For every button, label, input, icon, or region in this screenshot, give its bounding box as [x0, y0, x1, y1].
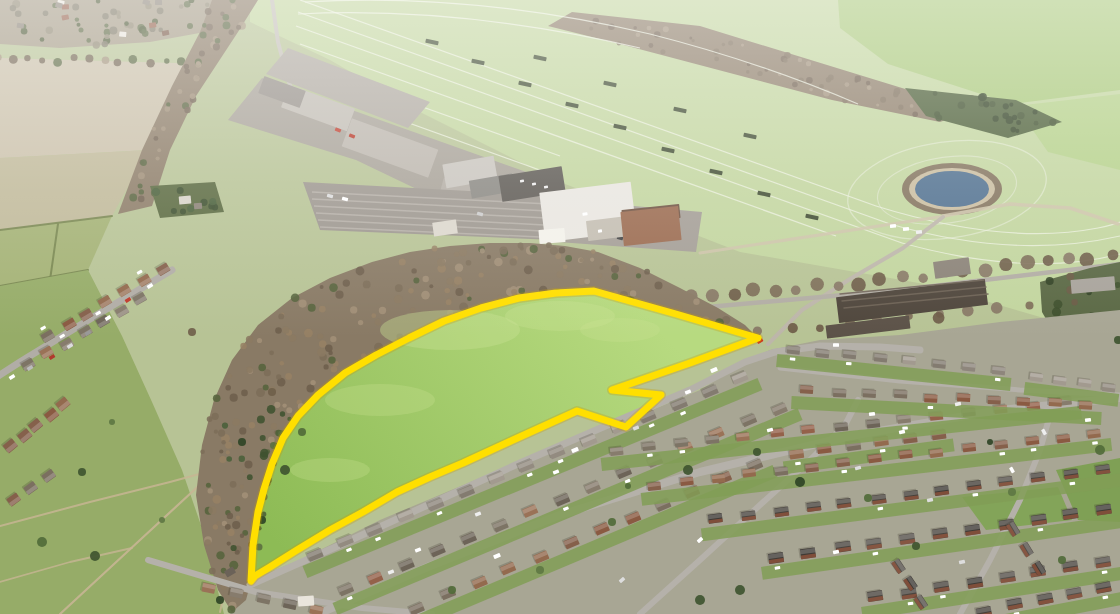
- aerial-photo-canvas: [0, 0, 1120, 614]
- aerial-photograph: [0, 0, 1120, 614]
